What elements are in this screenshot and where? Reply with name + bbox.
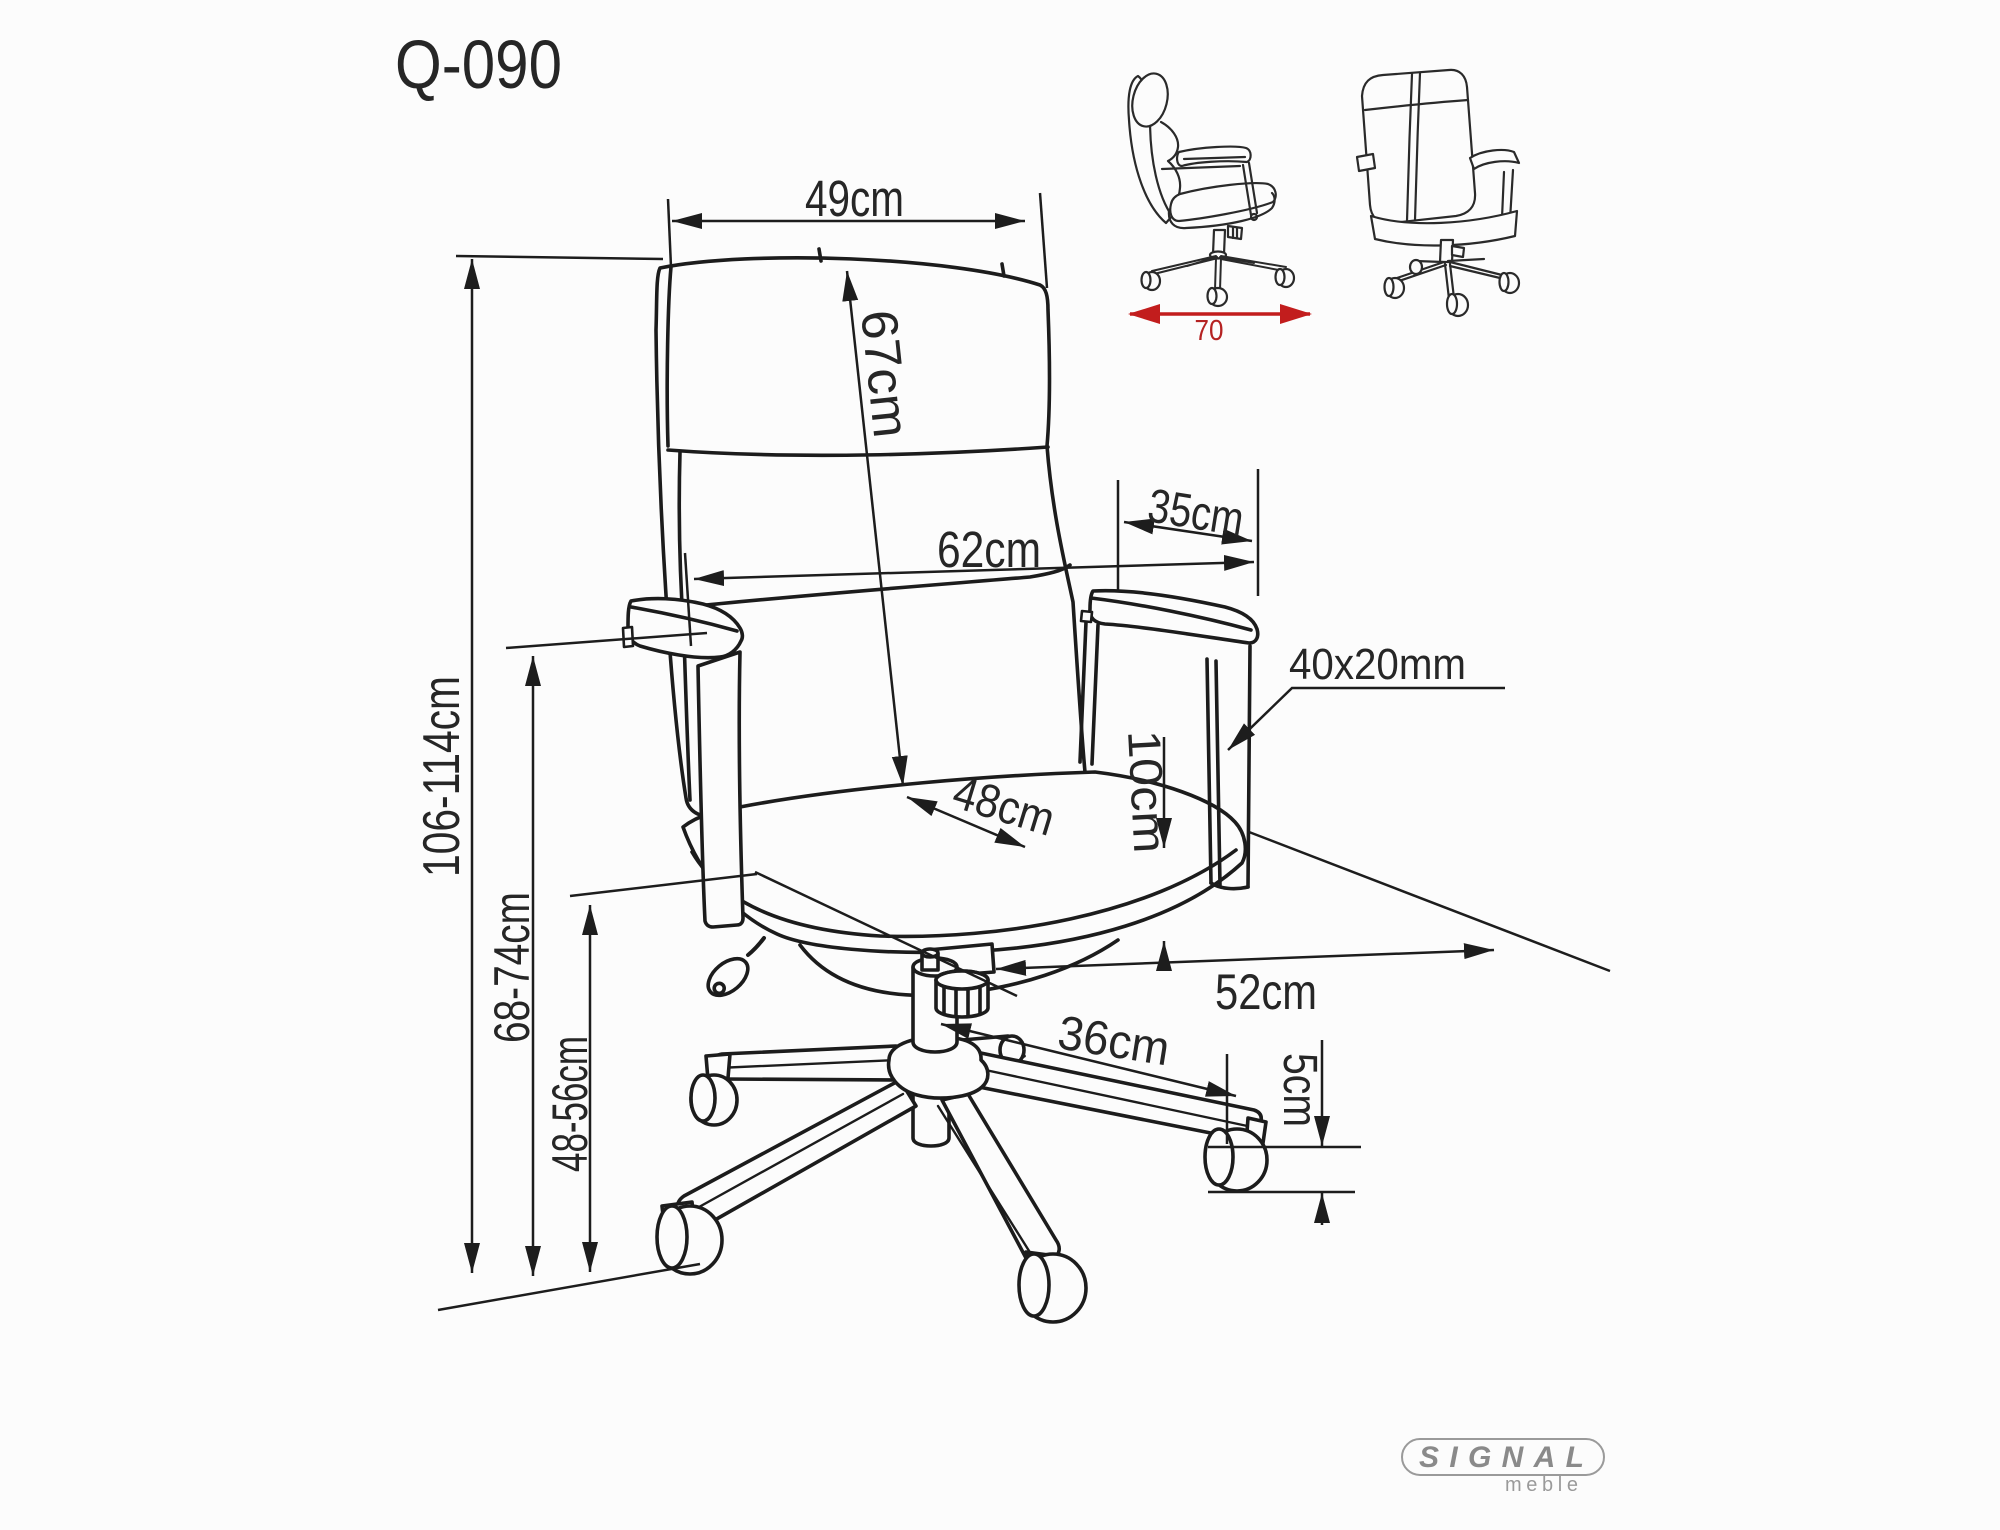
svg-text:Q-090: Q-090 (395, 26, 562, 103)
svg-text:68-74cm: 68-74cm (484, 892, 540, 1043)
svg-text:meble: meble (1505, 1474, 1586, 1496)
svg-text:62cm: 62cm (937, 521, 1041, 578)
svg-text:SIGNAL: SIGNAL (1419, 1441, 1591, 1474)
svg-text:5cm: 5cm (1273, 1053, 1326, 1127)
svg-text:106-114cm: 106-114cm (413, 676, 471, 877)
svg-text:52cm: 52cm (1215, 964, 1317, 1020)
svg-text:40x20mm: 40x20mm (1289, 640, 1466, 689)
svg-text:10cm: 10cm (1118, 729, 1176, 855)
svg-text:48-56cm: 48-56cm (542, 1036, 598, 1172)
svg-text:70: 70 (1195, 315, 1224, 347)
svg-text:49cm: 49cm (805, 170, 904, 227)
